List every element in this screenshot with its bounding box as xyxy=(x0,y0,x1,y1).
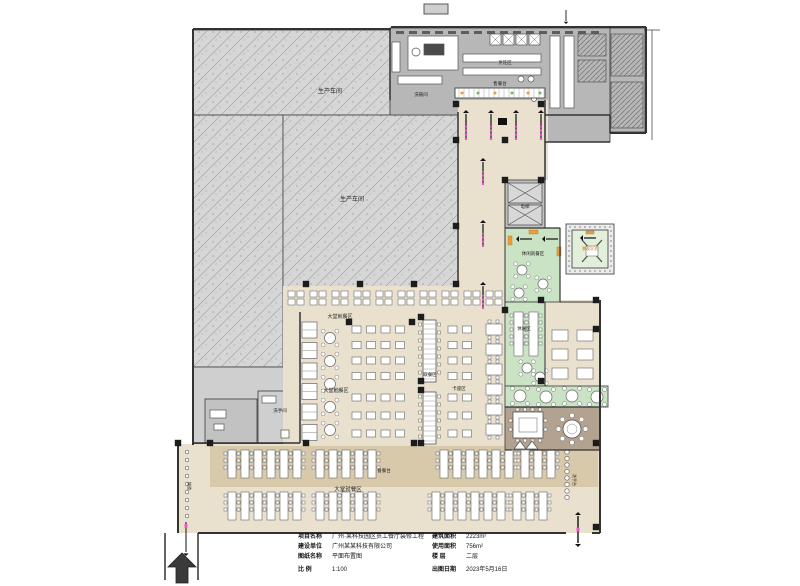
hood-dash xyxy=(539,31,547,34)
room-label: 洗手间 xyxy=(273,407,287,414)
region-hatch-overlay xyxy=(193,115,283,367)
structural-column xyxy=(593,297,599,303)
hood-dash xyxy=(526,31,534,34)
kitchen-fixture xyxy=(564,36,574,108)
hood-dash xyxy=(396,31,404,34)
hood-dash xyxy=(500,31,508,34)
hood-dash xyxy=(578,31,586,34)
room-label: 大堂就餐区 xyxy=(327,313,352,320)
kitchen-fixture xyxy=(392,42,400,72)
region-roof-vent xyxy=(424,4,448,14)
room-label: 景观水池 xyxy=(582,245,598,251)
serving-counter xyxy=(455,88,545,98)
kitchen-fixture xyxy=(611,34,643,76)
kitchen-fixture xyxy=(578,60,606,82)
room-label: 电梯 xyxy=(521,203,530,210)
structural-column xyxy=(411,281,417,287)
structural-column xyxy=(538,378,544,384)
structural-column xyxy=(502,137,508,143)
structural-column xyxy=(593,524,599,530)
room-label: 卡座区 xyxy=(452,385,466,392)
hood-dash xyxy=(513,31,521,34)
washroom-fixture xyxy=(262,396,276,403)
structural-column xyxy=(175,440,181,446)
room-label: 售餐台 xyxy=(493,80,507,87)
structural-column xyxy=(538,297,544,303)
room-label: 生产车间 xyxy=(318,87,342,95)
region-kitchen-store xyxy=(545,115,610,142)
region-utility-room-1 xyxy=(205,399,257,443)
hood-dash xyxy=(422,31,430,34)
long-table-group xyxy=(312,492,380,520)
structural-column xyxy=(593,440,599,446)
kitchen-entry-arrow xyxy=(564,10,568,24)
room-label: 备餐台 xyxy=(377,467,391,474)
structural-column xyxy=(453,223,459,229)
long-table-group xyxy=(517,450,559,478)
room-label: 生产车间 xyxy=(340,195,364,203)
washroom-fixture xyxy=(210,410,226,418)
hood-dash xyxy=(409,31,417,34)
hood-dash xyxy=(448,31,456,34)
hood-dash xyxy=(435,31,443,34)
room-label: 大堂就餐区 xyxy=(334,485,362,493)
structural-column xyxy=(538,101,544,107)
long-table-group xyxy=(312,450,380,478)
kitchen-fixture xyxy=(550,36,560,108)
vip-square-table xyxy=(509,408,547,442)
structural-column xyxy=(453,101,459,107)
kitchen-fixture xyxy=(578,34,606,56)
region-hatch-overlay xyxy=(193,30,390,115)
floor-plan-drawing: 生产车间生产车间洗碗间烹饪区售餐台大堂就餐区大堂就餐区取餐区卡座区休闲就餐区景观… xyxy=(0,0,800,586)
structural-column xyxy=(538,177,544,183)
queue-divider xyxy=(498,118,507,125)
structural-column xyxy=(303,281,309,287)
long-table-group xyxy=(509,492,551,520)
floor-plan-sheet: 生产车间生产车间洗碗间烹饪区售餐台大堂就餐区大堂就餐区取餐区卡座区休闲就餐区景观… xyxy=(0,0,800,586)
room-label: 休闲就餐区 xyxy=(522,250,545,257)
structural-column xyxy=(207,440,213,446)
structural-column xyxy=(418,314,424,320)
room-label: 坡道 xyxy=(187,482,193,490)
structural-column xyxy=(409,319,415,325)
region-hatch-overlay xyxy=(283,115,458,288)
structural-column xyxy=(357,281,363,287)
room-label: 洗手台 xyxy=(572,474,578,486)
structural-column xyxy=(411,440,417,446)
structural-column xyxy=(418,378,424,384)
structural-column xyxy=(418,387,424,393)
hood-dash xyxy=(487,31,495,34)
structural-column xyxy=(453,281,459,287)
washroom-fixture xyxy=(281,430,289,438)
room-label: 大堂就餐区 xyxy=(323,387,348,394)
structural-column xyxy=(418,440,424,446)
room-label: 洗碗间 xyxy=(414,91,428,98)
kitchen-fixture xyxy=(463,68,541,75)
main-entrance-arrow xyxy=(168,553,196,583)
kitchen-fixture xyxy=(611,82,643,128)
hood-dash xyxy=(565,31,573,34)
kitchen-fixture xyxy=(424,44,444,55)
vip-round-table xyxy=(556,413,588,445)
hood-dash xyxy=(474,31,482,34)
room-label: 取餐区 xyxy=(423,371,437,378)
hood-dash xyxy=(461,31,469,34)
hood-dash xyxy=(591,31,599,34)
hood-dash xyxy=(552,31,560,34)
room-label: 休闲区 xyxy=(517,325,531,332)
structural-column xyxy=(502,307,508,313)
structural-column xyxy=(502,177,508,183)
structural-column xyxy=(303,440,309,446)
kitchen-fixture xyxy=(398,76,442,84)
structural-column xyxy=(593,326,599,332)
room-label: 烹饪区 xyxy=(498,59,512,66)
structural-column xyxy=(453,137,459,143)
washroom-fixture xyxy=(214,424,224,430)
